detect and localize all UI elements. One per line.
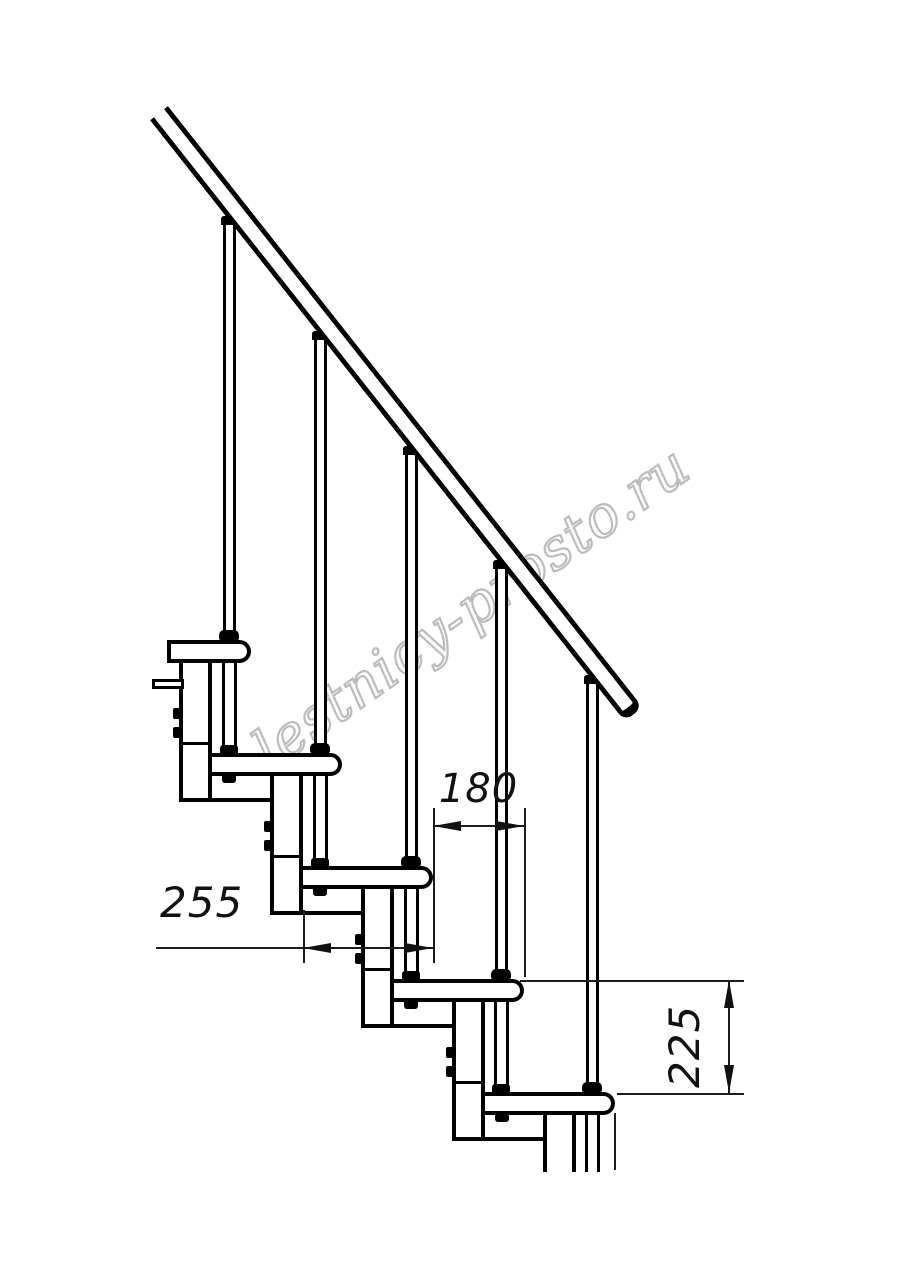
baluster-base-collar [310,743,330,753]
tube-nut [495,1115,509,1122]
bracket-bolt [173,727,182,738]
support-tube [313,776,328,866]
dim-extension-line [617,1093,744,1095]
baluster-base-collar [219,630,239,640]
support-bracket [361,889,394,1028]
bracket-divider [179,742,212,745]
baluster-rod [314,337,327,753]
dim-extension-line [524,808,526,977]
bracket-bolt [355,934,364,945]
tube-collar [311,858,329,866]
bracket-divider [361,968,394,971]
bracket-divider [270,855,303,858]
watermark-text: lestnicy-prosto.ru [244,438,700,780]
tube-nut [404,1002,418,1009]
tread [303,866,433,889]
dim-extension-line [433,808,435,963]
bracket-bolt [355,953,364,964]
baluster-rod [586,681,599,1092]
support-tube [404,889,419,979]
support-bracket [452,1002,485,1141]
bracket-bolt [173,708,182,719]
baluster-base-collar [401,856,421,866]
dim-arrow-up-icon [724,980,734,1008]
tube-collar [220,745,238,753]
dim-label-step-run: 180 [433,766,524,812]
bracket-base-line [212,798,270,802]
dim-arrow-left-icon [303,943,331,953]
bracket-base-line [485,1137,543,1141]
bracket-bolt [264,821,273,832]
tube-nut [313,889,327,896]
support-tube [494,1002,509,1092]
support-tube [585,1115,600,1172]
bracket-bolt [264,840,273,851]
support-bracket [543,1115,576,1172]
baluster-base-collar [491,969,511,979]
tube-nut [222,776,236,783]
dim-line [156,947,433,949]
staircase-drawing-canvas: { "watermark": { "text": "lestnicy-prost… [0,0,914,1280]
dim-extension-line [520,980,744,982]
baluster-base-collar [582,1082,602,1092]
bracket-bolt [446,1066,455,1077]
dim-label-tread-depth: 255 [160,878,243,927]
upper-module-clamp [152,679,184,689]
tube-collar [492,1084,510,1092]
baluster-rod [405,452,418,866]
support-tube [222,663,237,753]
bracket-bolt [446,1047,455,1058]
baluster-rod [223,222,236,640]
tread [485,1092,615,1115]
bracket-base-line [303,911,361,915]
support-bracket [270,776,303,915]
tread [212,753,342,776]
tread [167,640,251,663]
dim-arrow-right-icon [405,943,433,953]
dim-arrow-down-icon [724,1065,734,1093]
dim-label-step-rise: 225 [660,968,709,1088]
bracket-base-line [394,1024,452,1028]
bracket-divider [452,1081,485,1084]
dim-arrow-right-icon [496,821,524,831]
tread-nose-line [614,1113,616,1170]
tube-collar [402,971,420,979]
dim-arrow-left-icon [433,821,461,831]
tread [394,979,524,1002]
dim-extension-line [303,910,305,963]
